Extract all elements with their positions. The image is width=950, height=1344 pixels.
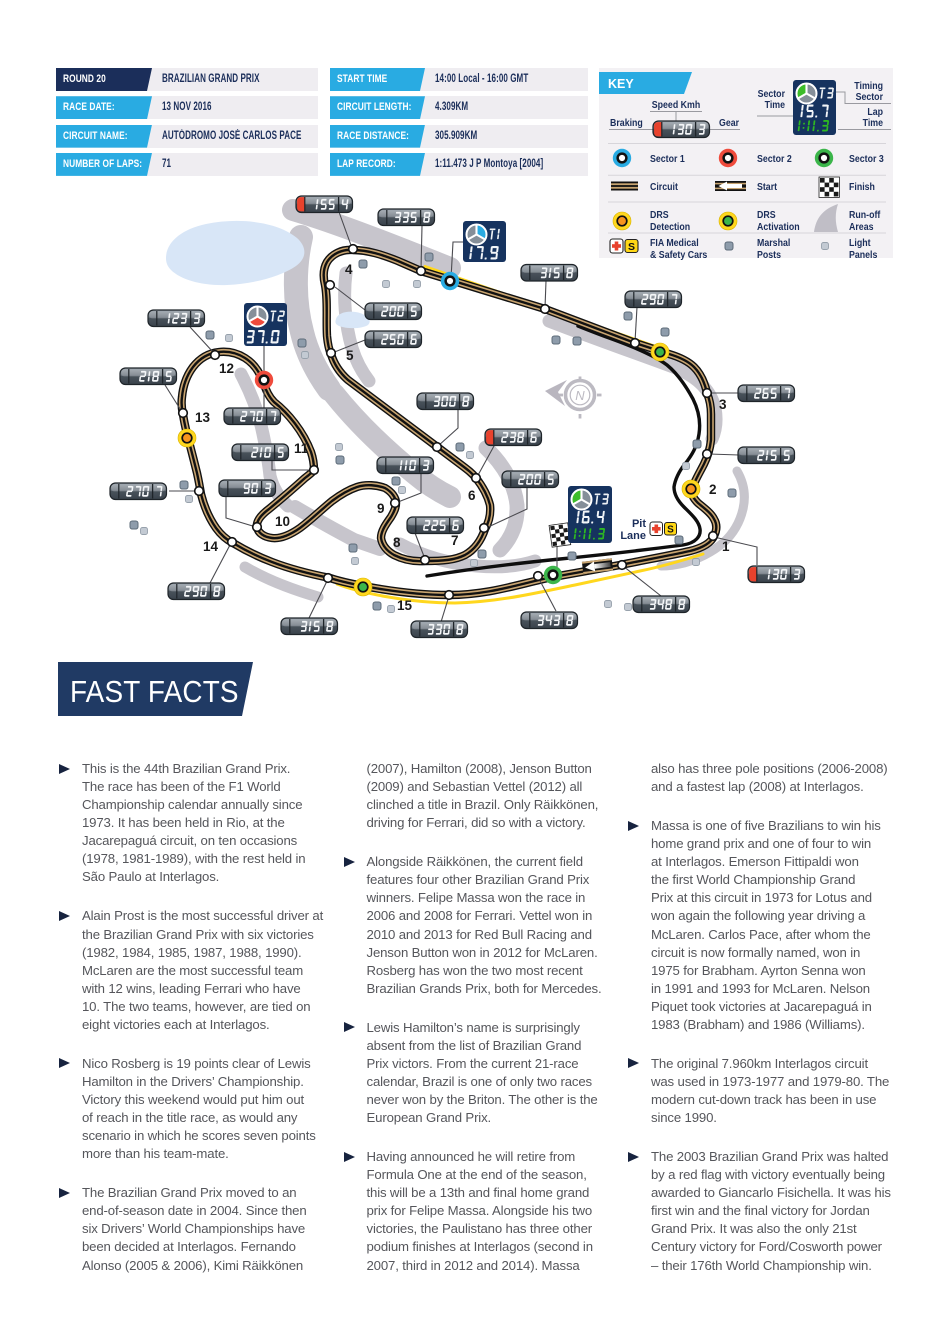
svg-text:12: 12 bbox=[219, 361, 234, 376]
svg-text:2: 2 bbox=[709, 482, 717, 497]
svg-text:9: 9 bbox=[377, 501, 385, 516]
svg-text:Detection: Detection bbox=[650, 221, 690, 233]
svg-text:7: 7 bbox=[451, 533, 459, 548]
svg-text:Panels: Panels bbox=[849, 249, 877, 261]
svg-text:Sector 3: Sector 3 bbox=[849, 153, 884, 165]
svg-text:Pit: Pit bbox=[632, 518, 646, 530]
svg-text:Braking: Braking bbox=[610, 117, 643, 129]
svg-text:10: 10 bbox=[275, 514, 290, 529]
svg-text:DRS: DRS bbox=[757, 209, 776, 221]
svg-text:Activation: Activation bbox=[757, 221, 800, 233]
svg-text:Light: Light bbox=[849, 237, 871, 249]
svg-text:Sector 2: Sector 2 bbox=[757, 153, 792, 165]
svg-text:5: 5 bbox=[346, 348, 354, 363]
svg-text:Sector 1: Sector 1 bbox=[650, 153, 685, 165]
svg-text:Lane: Lane bbox=[620, 530, 646, 542]
svg-text:1: 1 bbox=[722, 539, 730, 554]
svg-text:Areas: Areas bbox=[849, 221, 874, 233]
svg-text:4: 4 bbox=[345, 262, 353, 277]
svg-text:13: 13 bbox=[195, 410, 211, 425]
svg-text:Marshal: Marshal bbox=[757, 237, 790, 249]
svg-text:6: 6 bbox=[468, 488, 476, 503]
svg-text:KEY: KEY bbox=[608, 77, 634, 91]
svg-text:8: 8 bbox=[393, 535, 401, 550]
svg-text:Finish: Finish bbox=[849, 181, 875, 193]
svg-text:DRS: DRS bbox=[650, 209, 669, 221]
svg-text:Sector: Sector bbox=[856, 91, 884, 103]
svg-text:Speed Kmh: Speed Kmh bbox=[652, 99, 701, 111]
svg-text:& Safety Cars: & Safety Cars bbox=[650, 249, 707, 261]
svg-text:Start: Start bbox=[757, 181, 778, 193]
svg-text:14: 14 bbox=[203, 539, 219, 554]
svg-text:Gear: Gear bbox=[719, 117, 739, 129]
svg-text:FIA Medical: FIA Medical bbox=[650, 237, 699, 249]
svg-text:Run-off: Run-off bbox=[849, 209, 881, 221]
svg-text:15: 15 bbox=[397, 598, 413, 613]
svg-text:Posts: Posts bbox=[757, 249, 781, 261]
svg-text:S: S bbox=[628, 241, 635, 253]
svg-text:N: N bbox=[575, 388, 585, 403]
svg-text:Circuit: Circuit bbox=[650, 181, 679, 193]
svg-text:Time: Time bbox=[765, 99, 786, 111]
svg-text:S: S bbox=[667, 525, 674, 536]
svg-text:11: 11 bbox=[294, 441, 309, 456]
svg-text:3: 3 bbox=[719, 397, 727, 412]
svg-text:Time: Time bbox=[863, 117, 884, 129]
